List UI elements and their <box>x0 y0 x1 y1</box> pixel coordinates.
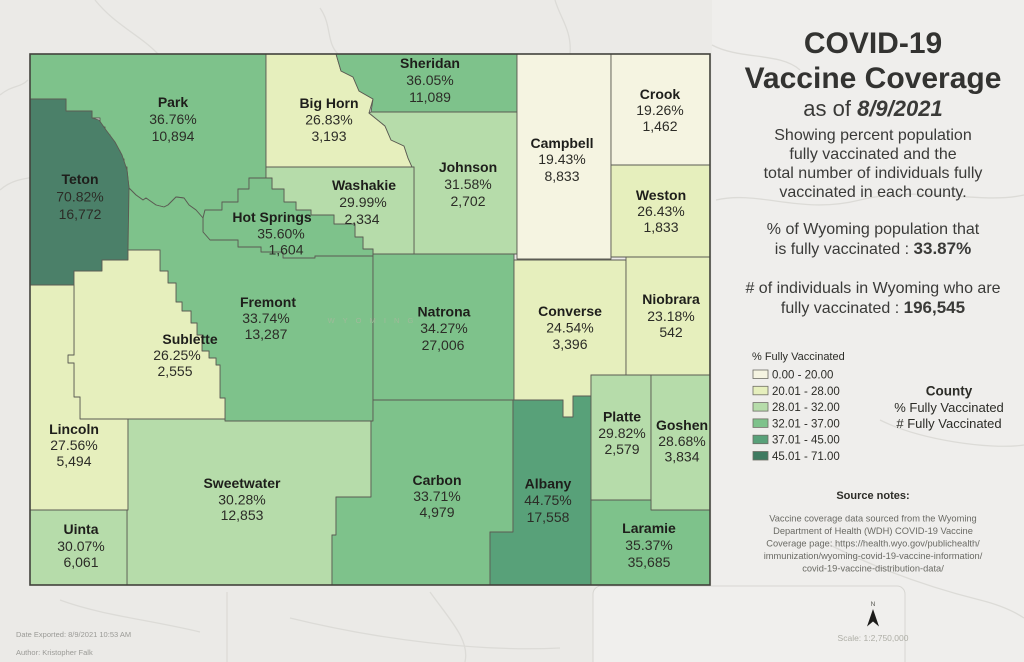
svg-text:Uinta: Uinta <box>64 521 99 537</box>
svg-text:35.60%: 35.60% <box>257 225 304 241</box>
svg-text:Date Exported: 8/9/2021 10:53: Date Exported: 8/9/2021 10:53 AM <box>16 630 131 639</box>
svg-text:10,894: 10,894 <box>152 128 195 144</box>
svg-text:Source notes:: Source notes: <box>836 490 909 502</box>
svg-text:26.25%: 26.25% <box>153 347 200 363</box>
svg-text:Niobrara: Niobrara <box>642 291 700 307</box>
svg-text:# Fully Vaccinated: # Fully Vaccinated <box>896 416 1001 431</box>
svg-text:23.18%: 23.18% <box>647 308 694 324</box>
svg-text:as of 8/9/2021: as of 8/9/2021 <box>803 96 942 121</box>
svg-text:Showing percent population: Showing percent population <box>774 127 971 144</box>
svg-text:Carbon: Carbon <box>413 472 462 488</box>
svg-text:Scale: 1:2,750,000: Scale: 1:2,750,000 <box>838 633 909 643</box>
svg-text:29.99%: 29.99% <box>339 194 386 210</box>
svg-text:Platte: Platte <box>603 409 641 425</box>
svg-text:Albany: Albany <box>525 476 572 492</box>
svg-text:Coverage page: https://health.: Coverage page: https://health.wyo.gov/pu… <box>766 539 980 549</box>
svg-text:Sheridan: Sheridan <box>400 55 460 71</box>
svg-text:70.82%: 70.82% <box>56 189 103 205</box>
svg-text:Natrona: Natrona <box>418 304 471 320</box>
svg-text:1,604: 1,604 <box>268 241 303 257</box>
svg-text:Vaccine Coverage: Vaccine Coverage <box>745 62 1002 95</box>
svg-text:32.01 - 37.00: 32.01 - 37.00 <box>772 418 840 430</box>
svg-text:1,833: 1,833 <box>643 219 678 235</box>
svg-text:Fremont: Fremont <box>240 294 296 310</box>
svg-text:30.07%: 30.07% <box>57 538 104 554</box>
svg-text:12,853: 12,853 <box>221 507 264 523</box>
svg-text:Washakie: Washakie <box>332 177 396 193</box>
svg-text:Johnson: Johnson <box>439 159 497 175</box>
svg-text:Vaccine coverage data sourced: Vaccine coverage data sourced from the W… <box>769 514 976 524</box>
svg-text:6,061: 6,061 <box>63 554 98 570</box>
svg-text:29.82%: 29.82% <box>598 425 645 441</box>
svg-text:% of Wyoming population that: % of Wyoming population that <box>767 221 980 238</box>
svg-text:COVID-19: COVID-19 <box>804 27 942 60</box>
svg-text:Sweetwater: Sweetwater <box>203 475 281 491</box>
svg-text:34.27%: 34.27% <box>420 320 467 336</box>
svg-text:17,558: 17,558 <box>527 509 570 525</box>
svg-text:19.26%: 19.26% <box>636 102 683 118</box>
svg-text:Weston: Weston <box>636 187 686 203</box>
svg-text:N: N <box>871 601 876 608</box>
svg-text:vaccinated in each county.: vaccinated in each county. <box>779 184 966 201</box>
svg-text:2,334: 2,334 <box>344 211 379 227</box>
svg-text:16,772: 16,772 <box>59 206 102 222</box>
svg-text:0.00 - 20.00: 0.00 - 20.00 <box>772 370 833 382</box>
svg-text:13,287: 13,287 <box>245 326 288 342</box>
svg-text:Campbell: Campbell <box>530 135 593 151</box>
svg-text:36.05%: 36.05% <box>406 72 453 88</box>
svg-text:total number of individuals fu: total number of individuals fully <box>764 165 983 182</box>
svg-text:Goshen: Goshen <box>656 417 708 433</box>
svg-text:1,462: 1,462 <box>642 118 677 134</box>
svg-text:Lincoln: Lincoln <box>49 421 99 437</box>
svg-text:immunization/wyoming-covid-19-: immunization/wyoming-covid-19-vaccine-in… <box>764 551 983 561</box>
svg-text:Sublette: Sublette <box>162 331 217 347</box>
svg-text:Laramie: Laramie <box>622 520 676 536</box>
svg-text:27.56%: 27.56% <box>50 437 97 453</box>
svg-text:% Fully Vaccinated: % Fully Vaccinated <box>894 400 1004 415</box>
svg-text:County: County <box>926 384 973 399</box>
svg-text:11,089: 11,089 <box>409 89 451 105</box>
svg-text:Park: Park <box>158 94 189 110</box>
svg-text:20.01 - 28.00: 20.01 - 28.00 <box>772 386 840 398</box>
svg-text:37.01 - 45.00: 37.01 - 45.00 <box>772 435 840 447</box>
svg-text:Converse: Converse <box>538 303 602 319</box>
svg-text:fully vaccinated : 196,545: fully vaccinated : 196,545 <box>781 298 965 317</box>
svg-text:45.01 - 71.00: 45.01 - 71.00 <box>772 451 840 463</box>
svg-text:31.58%: 31.58% <box>444 176 491 192</box>
svg-text:3,193: 3,193 <box>311 128 346 144</box>
svg-text:Teton: Teton <box>61 171 98 187</box>
svg-text:30.28%: 30.28% <box>218 492 265 508</box>
svg-text:28.68%: 28.68% <box>658 433 705 449</box>
svg-text:33.71%: 33.71% <box>413 488 460 504</box>
svg-text:5,494: 5,494 <box>56 453 91 469</box>
svg-text:35.37%: 35.37% <box>625 537 672 553</box>
svg-text:2,702: 2,702 <box>450 193 485 209</box>
svg-text:W Y O M I N G: W Y O M I N G <box>328 316 417 325</box>
svg-text:44.75%: 44.75% <box>524 492 571 508</box>
svg-text:Crook: Crook <box>640 86 681 102</box>
svg-text:# of individuals in Wyoming wh: # of individuals in Wyoming who are <box>745 280 1000 297</box>
svg-text:% Fully Vaccinated: % Fully Vaccinated <box>752 351 845 363</box>
svg-text:Big Horn: Big Horn <box>299 95 358 111</box>
svg-text:33.74%: 33.74% <box>242 310 289 326</box>
svg-text:8,833: 8,833 <box>544 168 579 184</box>
svg-text:3,396: 3,396 <box>552 336 587 352</box>
svg-text:4,979: 4,979 <box>419 504 454 520</box>
svg-text:Department of Health (WDH) COV: Department of Health (WDH) COVID-19 Vacc… <box>773 526 973 536</box>
svg-text:36.76%: 36.76% <box>149 111 196 127</box>
svg-text:is fully vaccinated : 33.87%: is fully vaccinated : 33.87% <box>775 239 971 258</box>
svg-text:28.01 - 32.00: 28.01 - 32.00 <box>772 402 840 414</box>
svg-text:19.43%: 19.43% <box>538 151 585 167</box>
svg-text:27,006: 27,006 <box>422 337 465 353</box>
svg-text:covid-19-vaccine-distribution-: covid-19-vaccine-distribution-data/ <box>802 564 944 574</box>
svg-text:24.54%: 24.54% <box>546 320 593 336</box>
svg-text:35,685: 35,685 <box>628 554 671 570</box>
svg-text:2,579: 2,579 <box>604 441 639 457</box>
svg-text:26.43%: 26.43% <box>637 203 684 219</box>
svg-text:3,834: 3,834 <box>664 449 699 465</box>
svg-text:26.83%: 26.83% <box>305 112 352 128</box>
svg-text:Author: Kristopher Falk: Author: Kristopher Falk <box>16 648 93 657</box>
svg-text:Hot Springs: Hot Springs <box>232 209 312 225</box>
svg-text:2,555: 2,555 <box>157 363 192 379</box>
svg-text:fully vaccinated and the: fully vaccinated and the <box>789 146 956 163</box>
svg-text:542: 542 <box>659 324 683 340</box>
